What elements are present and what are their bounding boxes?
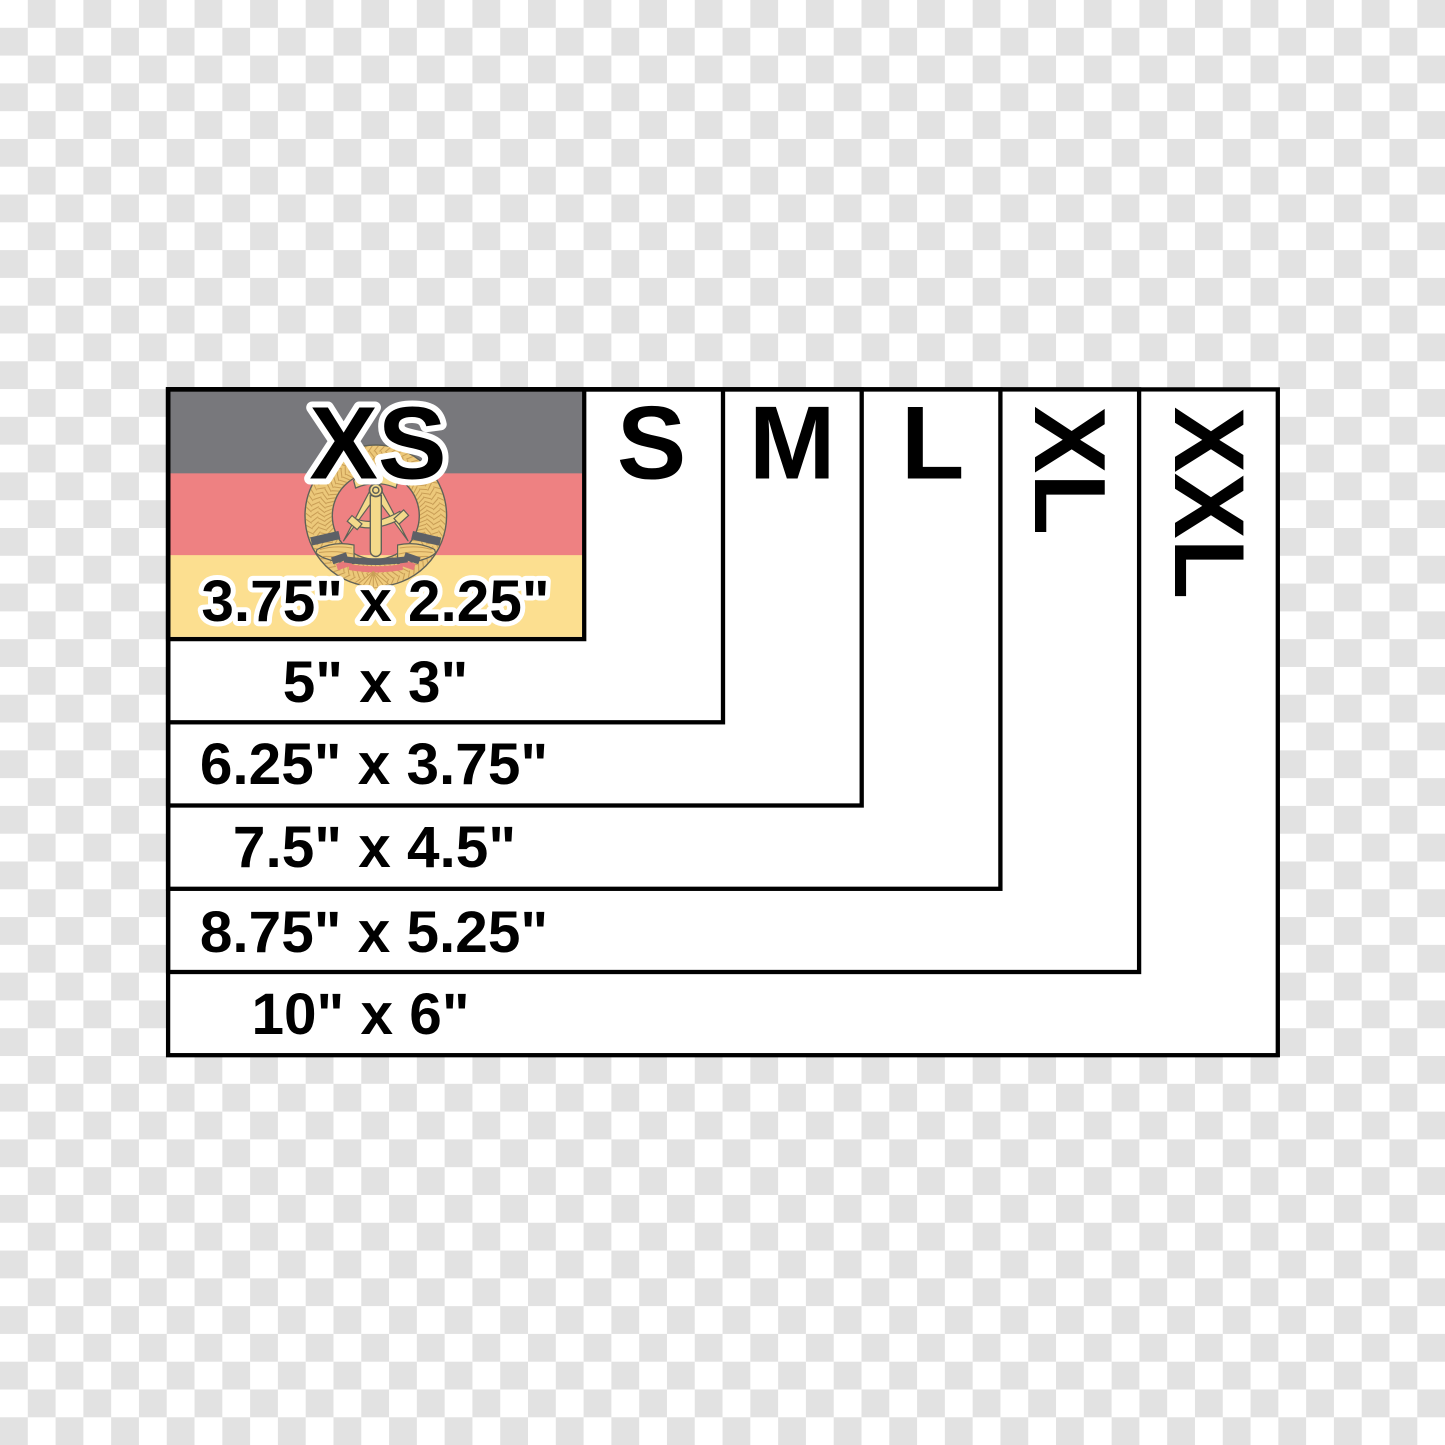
svg-text:XXL: XXL <box>1154 407 1265 600</box>
svg-text:XS: XS <box>309 386 446 501</box>
svg-text:3.75" x 2.25": 3.75" x 2.25" <box>201 569 549 634</box>
svg-text:6.25" x 3.75": 6.25" x 3.75" <box>200 732 548 797</box>
svg-text:5" x 3": 5" x 3" <box>283 650 469 715</box>
svg-text:10" x 6": 10" x 6" <box>251 982 469 1047</box>
svg-text:L: L <box>901 386 965 502</box>
svg-text:8.75" x 5.25": 8.75" x 5.25" <box>200 900 548 965</box>
svg-text:7.5" x 4.5": 7.5" x 4.5" <box>233 815 516 880</box>
svg-text:S: S <box>617 386 686 502</box>
svg-text:XL: XL <box>1013 406 1125 535</box>
svg-text:M: M <box>749 386 836 502</box>
